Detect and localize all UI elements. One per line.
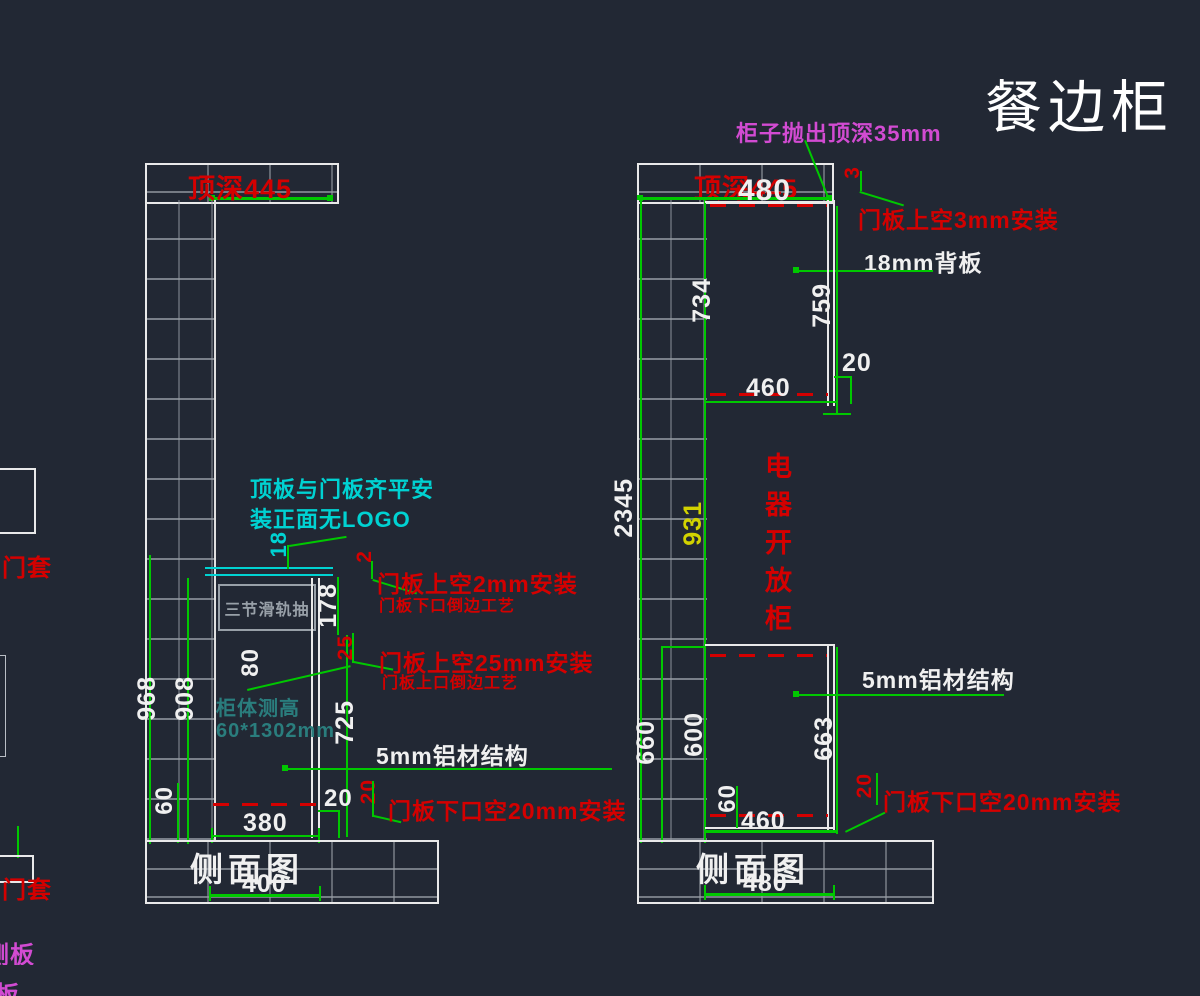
dim-line-480 — [705, 893, 835, 896]
leader-18-d — [289, 536, 347, 547]
dim-20-elbow-v2 — [850, 376, 852, 404]
dim-endpoint — [327, 195, 333, 201]
dim-line-60r — [736, 786, 738, 828]
note-bevel-bottom: 门板下口倒边工艺 — [379, 592, 515, 616]
left-top-board-line2 — [205, 574, 333, 576]
left-cabinet-side — [311, 578, 313, 838]
dim-20-red-left: 20 — [357, 779, 381, 804]
leader-20red-v2 — [876, 773, 878, 805]
dim-25-red: 25 — [334, 635, 358, 660]
cad-canvas: 餐边柜 顶深445 968 908 三节滑轨抽 178 725 80 18 顶板… — [0, 0, 1200, 996]
note-back-panel: 18mm背板 — [864, 244, 982, 278]
note-bevel-top: 门板上口倒边工艺 — [382, 669, 518, 693]
dim-line-460-lower — [705, 830, 838, 833]
edge-green-line — [17, 826, 19, 858]
dim-80: 80 — [237, 648, 265, 677]
edge-door-frame-label-1: 门套 — [2, 548, 52, 583]
dim-908: 908 — [171, 676, 200, 721]
dim-20-elbow-h — [318, 810, 340, 812]
leader-2-v — [371, 561, 373, 579]
dim-20-left: 20 — [324, 785, 353, 813]
leader-20red-v — [372, 781, 374, 817]
leader-aluminum-left — [286, 768, 612, 770]
dim-2345: 2345 — [610, 478, 639, 538]
note-flush-2: 装正面无LOGO — [250, 502, 411, 534]
dim-380: 380 — [243, 809, 288, 838]
dim-2-red: 2 — [353, 550, 377, 563]
dim-968: 968 — [133, 676, 162, 721]
note-bottom-gap-right: 门板下口空20mm安装 — [883, 783, 1121, 817]
edge-partial-frame-2 — [0, 655, 6, 757]
leader-dot — [793, 267, 799, 273]
dim-20-red-right: 20 — [853, 773, 877, 798]
cabinet-label: 电器开放柜 — [757, 452, 796, 662]
edge-partial-frame-1 — [0, 468, 36, 534]
red-dashed-lower-top — [710, 654, 828, 657]
note-body-size-2: 60*1302mm — [216, 720, 335, 743]
leader-dot — [282, 765, 288, 771]
left-top-board-line — [205, 567, 333, 569]
note-aluminum-left: 5mm铝材结构 — [376, 737, 529, 771]
leader-back-panel — [797, 270, 933, 272]
left-top-depth-label: 顶深445 — [188, 167, 292, 206]
dim-931: 931 — [679, 501, 708, 546]
dim-600: 600 — [680, 712, 709, 757]
note-gap3: 门板上空3mm安装 — [858, 201, 1059, 235]
dim-tick — [209, 886, 211, 901]
leader-25-v — [352, 633, 354, 663]
dim-725: 725 — [331, 700, 360, 745]
dim-tick — [833, 885, 835, 900]
left-wall-hatch — [145, 200, 216, 840]
edge-side-panel-label: 侧板 — [0, 942, 35, 965]
lower-cab-top — [705, 644, 835, 646]
page-title: 餐边柜 — [985, 62, 1174, 144]
edge-partial-clip: 板 — [0, 977, 28, 996]
leader-aluminum-right — [797, 694, 1004, 696]
dim-line-400 — [210, 894, 320, 897]
dim-660-elbow — [661, 646, 705, 648]
dim-663: 663 — [810, 716, 839, 761]
dim-660: 660 — [632, 720, 661, 765]
note-flush-1: 顶板与门板齐平安 — [250, 472, 434, 504]
drawer-slide-box: 三节滑轨抽 — [218, 584, 316, 631]
note-bottom-gap-left: 门板下口空20mm安装 — [388, 792, 626, 826]
dim-60-left: 60 — [151, 786, 179, 815]
dim-460-upper: 460 — [746, 374, 791, 403]
dim-734: 734 — [688, 278, 717, 323]
red-dashed-bottom-left — [213, 803, 316, 806]
edge-door-frame-label-2: 门套 — [2, 870, 52, 905]
note-body-size-1: 柜体测高 — [216, 692, 300, 721]
dim-line-660 — [661, 646, 663, 843]
leader-3-v — [860, 171, 862, 191]
note-aluminum-right: 5mm铝材结构 — [862, 661, 1015, 695]
dim-line-60 — [177, 783, 179, 843]
dim-480-top: 480 — [738, 174, 791, 208]
dim-178: 178 — [314, 583, 343, 628]
dim-20-elbow-v — [338, 810, 340, 838]
drawer-slide-label: 三节滑轨抽 — [224, 596, 309, 620]
edge-partial-label: 板 — [0, 982, 20, 996]
leader-dot — [793, 691, 799, 697]
dim-tick — [319, 886, 321, 901]
dim-line-380 — [212, 835, 320, 837]
edge-side-panel-clip: 侧板 — [0, 935, 46, 965]
leader-20red-d2 — [845, 812, 885, 833]
dim-tick — [704, 885, 706, 900]
ground-tick-h — [823, 413, 851, 415]
leader-18-v — [287, 545, 289, 569]
note-top-overhang: 柜子抛出顶深35mm — [736, 116, 942, 148]
dim-759: 759 — [808, 283, 837, 328]
dim-20-upper: 20 — [842, 349, 872, 378]
